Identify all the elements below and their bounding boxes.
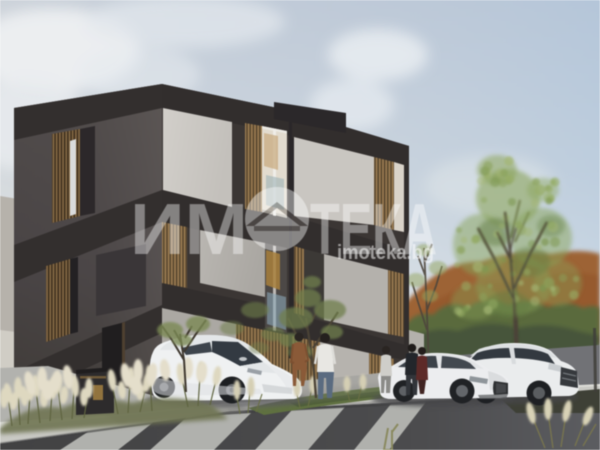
svg-text:imoteka.bg: imoteka.bg [337,242,434,264]
svg-text:ИМ: ИМ [130,190,248,270]
